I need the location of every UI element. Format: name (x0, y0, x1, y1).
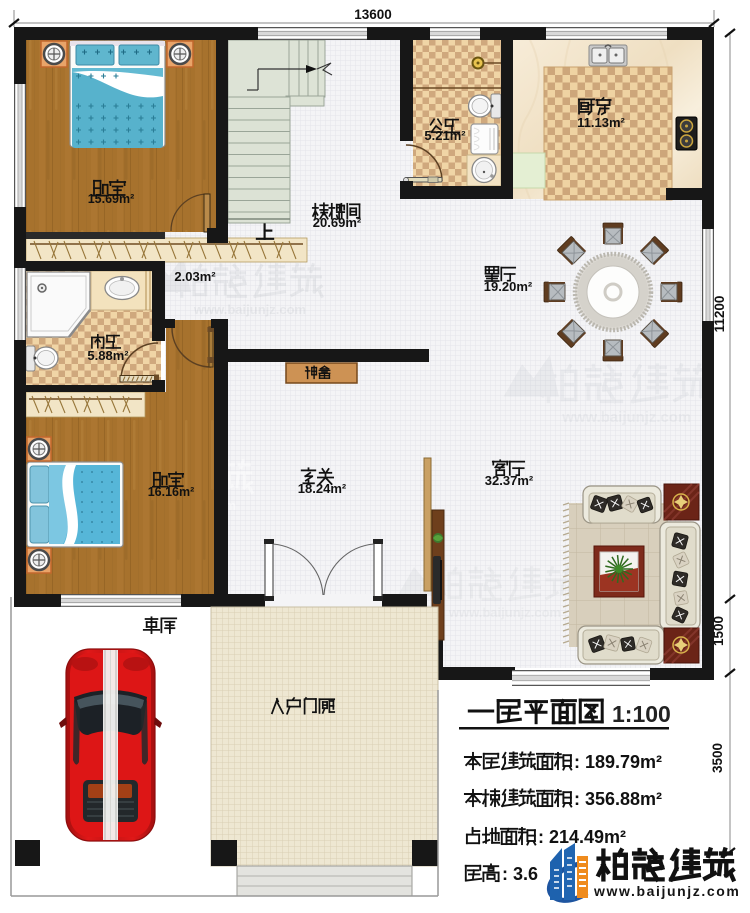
svg-text:32.37m²: 32.37m² (485, 473, 534, 488)
svg-text:11200: 11200 (712, 296, 727, 333)
svg-text:www.baijunjz.com: www.baijunjz.com (448, 605, 561, 620)
svg-text:2.03m²: 2.03m² (174, 269, 216, 284)
svg-text:www.baijunjz.com: www.baijunjz.com (561, 409, 691, 426)
svg-text:: 189.79m²: : 189.79m² (574, 752, 662, 772)
svg-text:1:100: 1:100 (612, 701, 671, 727)
svg-text:: 214.49m²: : 214.49m² (538, 827, 626, 847)
svg-text:13600: 13600 (354, 7, 392, 22)
svg-text:16.16m²: 16.16m² (148, 485, 195, 499)
svg-text:5.21m²: 5.21m² (424, 128, 466, 143)
svg-text:11.13m²: 11.13m² (577, 115, 625, 130)
svg-text:www.baijunjz.com: www.baijunjz.com (193, 302, 306, 317)
svg-text:1500: 1500 (711, 616, 726, 646)
svg-text:: 3.6: : 3.6 (502, 864, 538, 884)
svg-text:www.baijunjz.com: www.baijunjz.com (593, 883, 740, 899)
svg-text:18.24m²: 18.24m² (298, 481, 347, 496)
svg-text:19.20m²: 19.20m² (484, 279, 533, 294)
svg-text:5.88m²: 5.88m² (87, 348, 129, 363)
svg-text:20.69m²: 20.69m² (313, 215, 362, 230)
svg-text:15.69m²: 15.69m² (88, 192, 135, 206)
svg-text:3500: 3500 (710, 743, 725, 773)
svg-text:: 356.88m²: : 356.88m² (574, 789, 662, 809)
